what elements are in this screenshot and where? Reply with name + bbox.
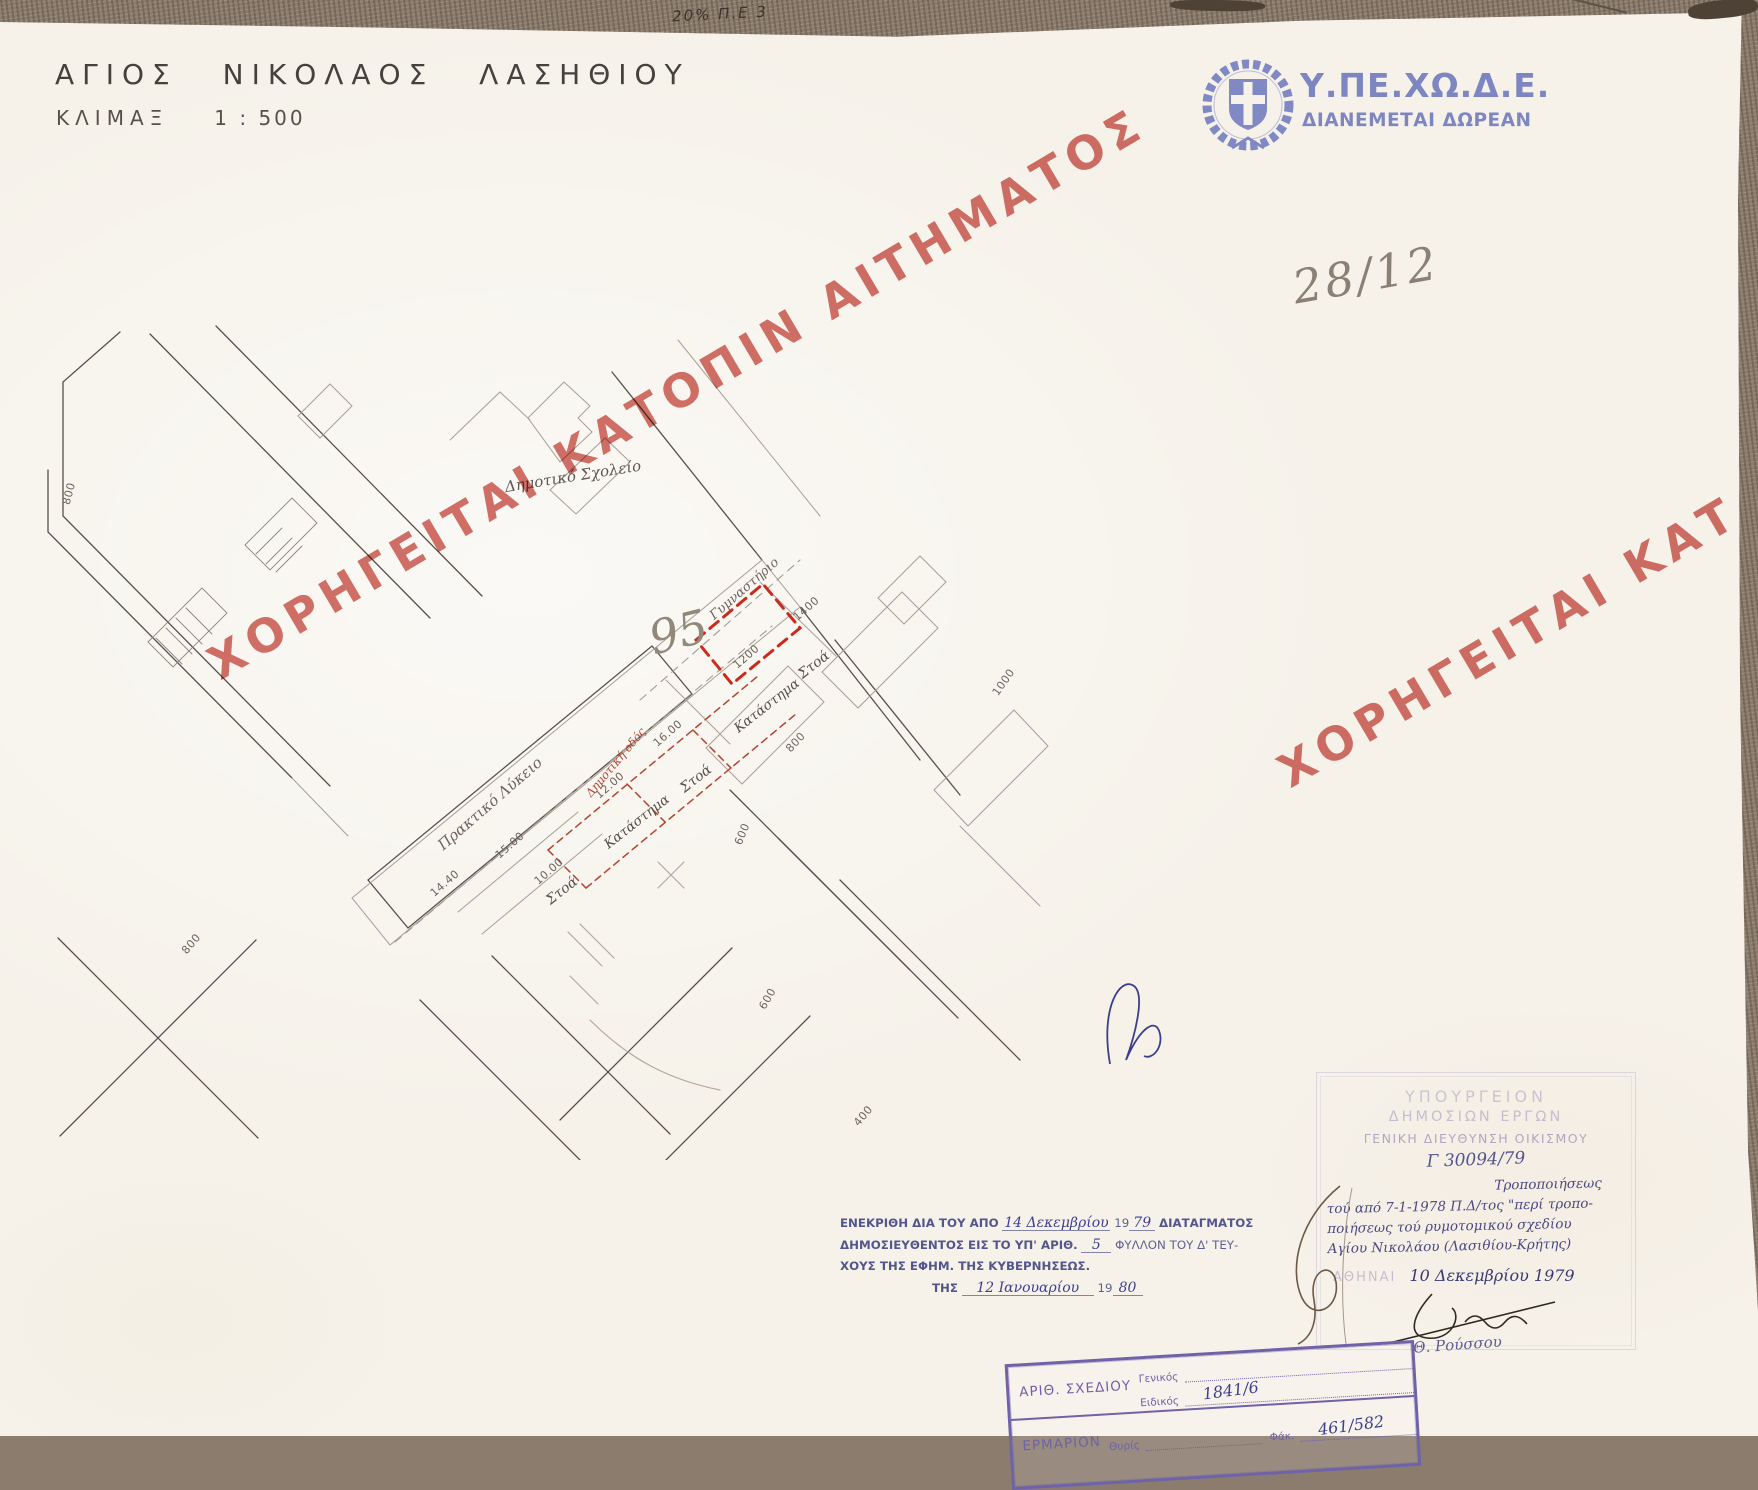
filing-stamp: ΑΡΙΘ. ΣΧΕΔΙΟΥ Γενικός Ειδικός 1841/6 ΕΡΜ… [1005, 1340, 1422, 1490]
approval-date2-ink: 12 Ιανουαρίου [962, 1281, 1094, 1296]
approval-date-ink: 14 Δεκεμβρίου [1002, 1216, 1110, 1231]
approval-block: ΕΝΕΚΡΙΘΗ ΔΙΑ ΤΟΥ ΑΠΟ 14 Δεκεμβρίου 1979 … [840, 1213, 1210, 1299]
approval-issue-ink: 5 [1081, 1238, 1111, 1253]
pencil-flourish [1280, 1178, 1376, 1350]
stamp-protocol-number: Γ 30094/79 [1317, 1144, 1636, 1175]
approval-line-3: ΧΟΥΣ ΤΗΣ ΕΦΗΜ. ΤΗΣ ΚΥΒΕΡΝΗΣΕΩΣ. [840, 1259, 1090, 1273]
approval-year2-ink: 80 [1113, 1281, 1143, 1296]
dashed-axis [395, 560, 800, 942]
approval-l1-19: 19 [1114, 1216, 1129, 1230]
approval-l1-prefix: ΕΝΕΚΡΙΘΗ ΔΙΑ ΤΟΥ ΑΠΟ [840, 1216, 999, 1230]
approval-l4-19: 19 [1097, 1281, 1112, 1295]
agency-name: Υ.ΠΕ.ΧΩ.Δ.Ε. [1300, 66, 1550, 105]
stamp-date-row: ΑΘΗΝΑΙ 10 Δεκεμβρίου 1979 [1333, 1266, 1635, 1285]
scanned-town-plan-document: { "scan": { "top_edge_note": "20% Π.Ε 3"… [0, 0, 1758, 1436]
filing-special-label: Ειδικός [1140, 1395, 1180, 1409]
agency-distribution: ΔΙΑΝΕΜΕΤΑΙ ΔΩΡΕΑΝ [1302, 110, 1532, 131]
stamp-date-ink: 10 Δεκεμβρίου 1979 [1409, 1266, 1574, 1285]
approval-line-4: ΤΗΣ 12 Ιανουαρίου 1980 [840, 1278, 1210, 1300]
stamp-ministry: ΥΠΟΥΡΓΕΙΟΝ [1317, 1087, 1635, 1106]
filing-folder-label: Φάκ. [1269, 1430, 1294, 1443]
approval-l2-prefix: ΔΗΜΟΣΙΕΥΘΕΝΤΟΣ ΕΙΣ ΤΟ ΥΠ' ΑΡΙΘ. [840, 1238, 1078, 1252]
pencil-marks [568, 862, 720, 1090]
approval-line-2: ΔΗΜΟΣΙΕΥΘΕΝΤΟΣ ΕΙΣ ΤΟ ΥΠ' ΑΡΙΘ. 5 ΦΥΛΛΟΝ… [840, 1235, 1210, 1257]
stamp-directorate: ΓΕΝΙΚΗ ΔΙΕΥΘΥΝΣΗ ΟΙΚΙΣΜΟΥ [1317, 1131, 1635, 1146]
ink-monogram [1090, 968, 1182, 1080]
filing-folder-line: 461/582 [1300, 1420, 1417, 1442]
stamp-department: ΔΗΜΟΣΙΩΝ ΕΡΓΩΝ [1317, 1109, 1635, 1125]
filing-general-label: Γενικός [1138, 1371, 1178, 1385]
approval-year-ink: 79 [1129, 1216, 1155, 1231]
filing-slot-label: Θυρίς [1109, 1439, 1140, 1453]
filing-row1-label: ΑΡΙΘ. ΣΧΕΔΙΟΥ [1009, 1377, 1140, 1401]
scale-value: 1 : 500 [214, 106, 305, 130]
filing-row2-label: ΕΡΜΑΡΙΟΝ [1012, 1433, 1109, 1455]
filing-folder-value-ink: 461/582 [1317, 1412, 1385, 1439]
filing-special-value-ink: 1841/6 [1202, 1377, 1260, 1403]
approval-l4-prefix: ΤΗΣ [932, 1281, 958, 1295]
approval-line-1: ΕΝΕΚΡΙΘΗ ΔΙΑ ΤΟΥ ΑΠΟ 14 Δεκεμβρίου 1979 … [840, 1213, 1210, 1235]
approval-l2-suffix: ΦΥΛΛΟΝ ΤΟΥ Δ' ΤΕΥ- [1115, 1238, 1238, 1252]
filing-slot-line [1145, 1429, 1262, 1451]
scale-label: ΚΛΙΜΑΞ [56, 106, 168, 130]
map-title: ΑΓΙΟΣ ΝΙΚΟΛΑΟΣ ΛΑΣΗΘΙΟΥ [55, 58, 690, 91]
scale-line: ΚΛΙΜΑΞ1 : 500 [56, 106, 306, 130]
approval-l1-suffix: ΔΙΑΤΑΓΜΑΤΟΣ [1159, 1216, 1253, 1230]
greek-state-emblem-icon [1192, 46, 1304, 162]
